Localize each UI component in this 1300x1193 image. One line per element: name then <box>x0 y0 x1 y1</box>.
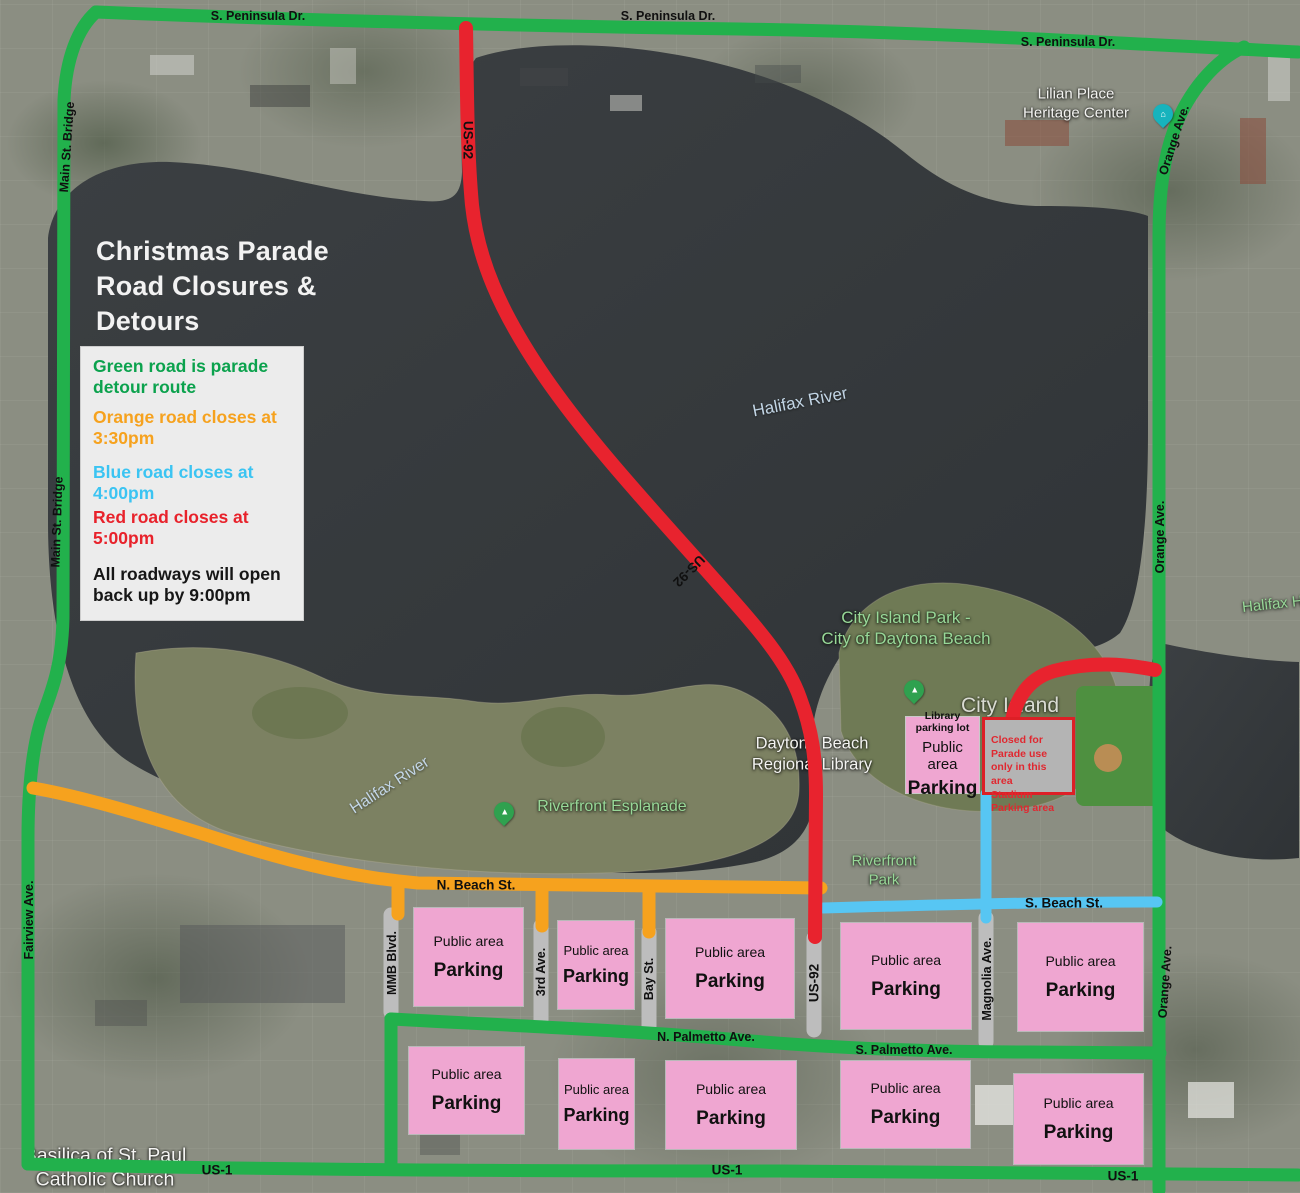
parking-box-7: Public area Parking <box>558 1058 635 1150</box>
parking-label: Parking <box>871 1107 941 1129</box>
public-area-label: Public area <box>695 944 765 960</box>
parade-closure-map: City Island Daytona Beach Regional Libra… <box>0 0 1300 1193</box>
parking-label: Parking <box>434 960 504 982</box>
public-area-label: Public area <box>564 1082 629 1097</box>
library-parking-box: Library parking lot Public area Parking <box>905 716 980 794</box>
public-area-label: Public area <box>1043 1095 1113 1111</box>
parking-label: Parking <box>563 966 629 987</box>
stadium-parking-closed-label: Closed for Parade use only in this area … <box>991 734 1068 816</box>
parking-label: Parking <box>871 979 941 1001</box>
parking-label: Parking <box>432 1093 502 1115</box>
parking-label: Parking <box>563 1105 629 1126</box>
parking-box-5: Public area Parking <box>1017 922 1144 1032</box>
public-area-label: Public area <box>1045 953 1115 969</box>
public-area-label: Public area <box>433 933 503 949</box>
parking-label: Parking <box>696 1108 766 1130</box>
public-area-label: Public area <box>431 1066 501 1082</box>
parking-box-6: Public area Parking <box>408 1046 525 1135</box>
stadium-parking-closed-box: Closed for Parade use only in this area … <box>982 717 1075 795</box>
public-area-label: Public area <box>870 1080 940 1096</box>
parking-box-8: Public area Parking <box>665 1060 797 1150</box>
parking-label: Parking <box>695 971 765 993</box>
library-parking-lot-label: Library parking lot <box>906 710 979 734</box>
parking-box-9: Public area Parking <box>840 1060 971 1149</box>
public-area-label: Public area <box>906 739 979 773</box>
parking-box-3: Public area Parking <box>665 918 795 1019</box>
parking-areas: Public area Parking Public area Parking … <box>0 0 1300 1193</box>
parking-label: Parking <box>1044 1122 1114 1144</box>
public-area-label: Public area <box>563 943 628 958</box>
parking-box-2: Public area Parking <box>557 920 635 1010</box>
public-area-label: Public area <box>871 952 941 968</box>
public-area-label: Public area <box>696 1081 766 1097</box>
parking-label: Parking <box>908 778 978 800</box>
parking-label: Parking <box>1046 980 1116 1002</box>
parking-box-1: Public area Parking <box>413 907 524 1007</box>
parking-box-10: Public area Parking <box>1013 1073 1144 1165</box>
parking-box-4: Public area Parking <box>840 922 972 1030</box>
